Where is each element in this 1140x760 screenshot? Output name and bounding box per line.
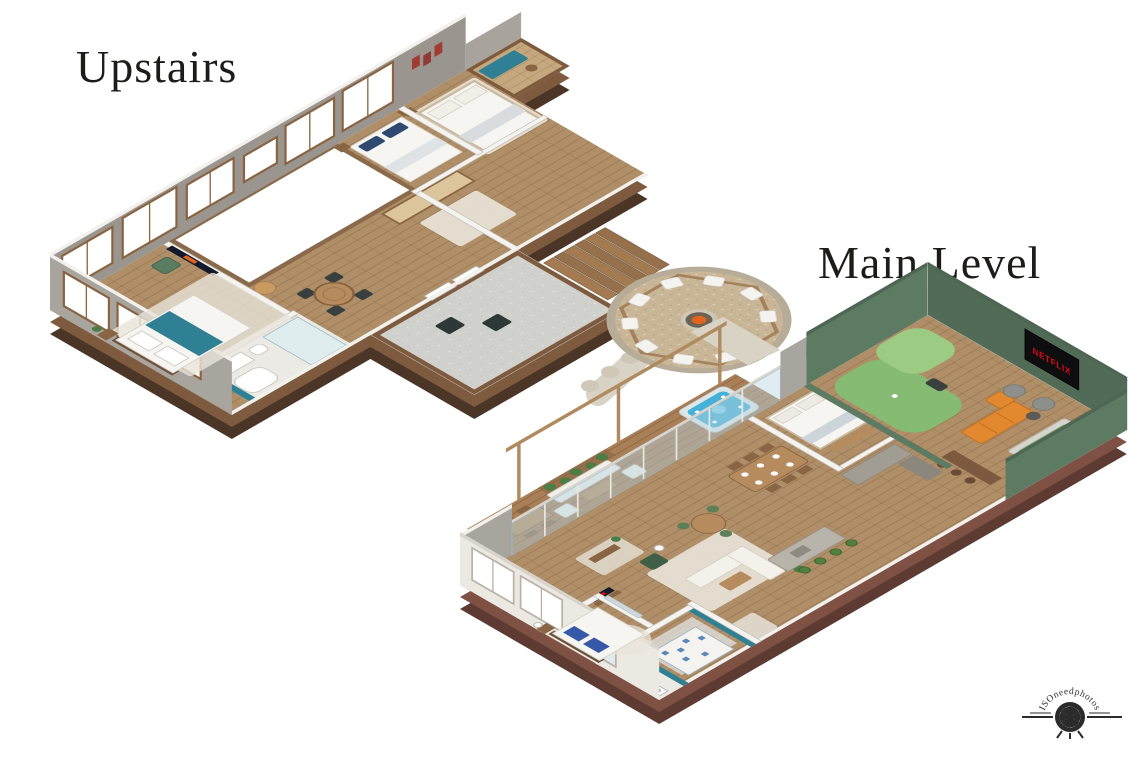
floorplan-page: Upstairs Main Level bbox=[0, 0, 1140, 760]
watermark-logo: ISOneedphotos bbox=[1022, 687, 1122, 739]
floorplan-canvas: NETFLIX bbox=[0, 0, 1140, 760]
camera-aperture-icon bbox=[1022, 702, 1122, 739]
